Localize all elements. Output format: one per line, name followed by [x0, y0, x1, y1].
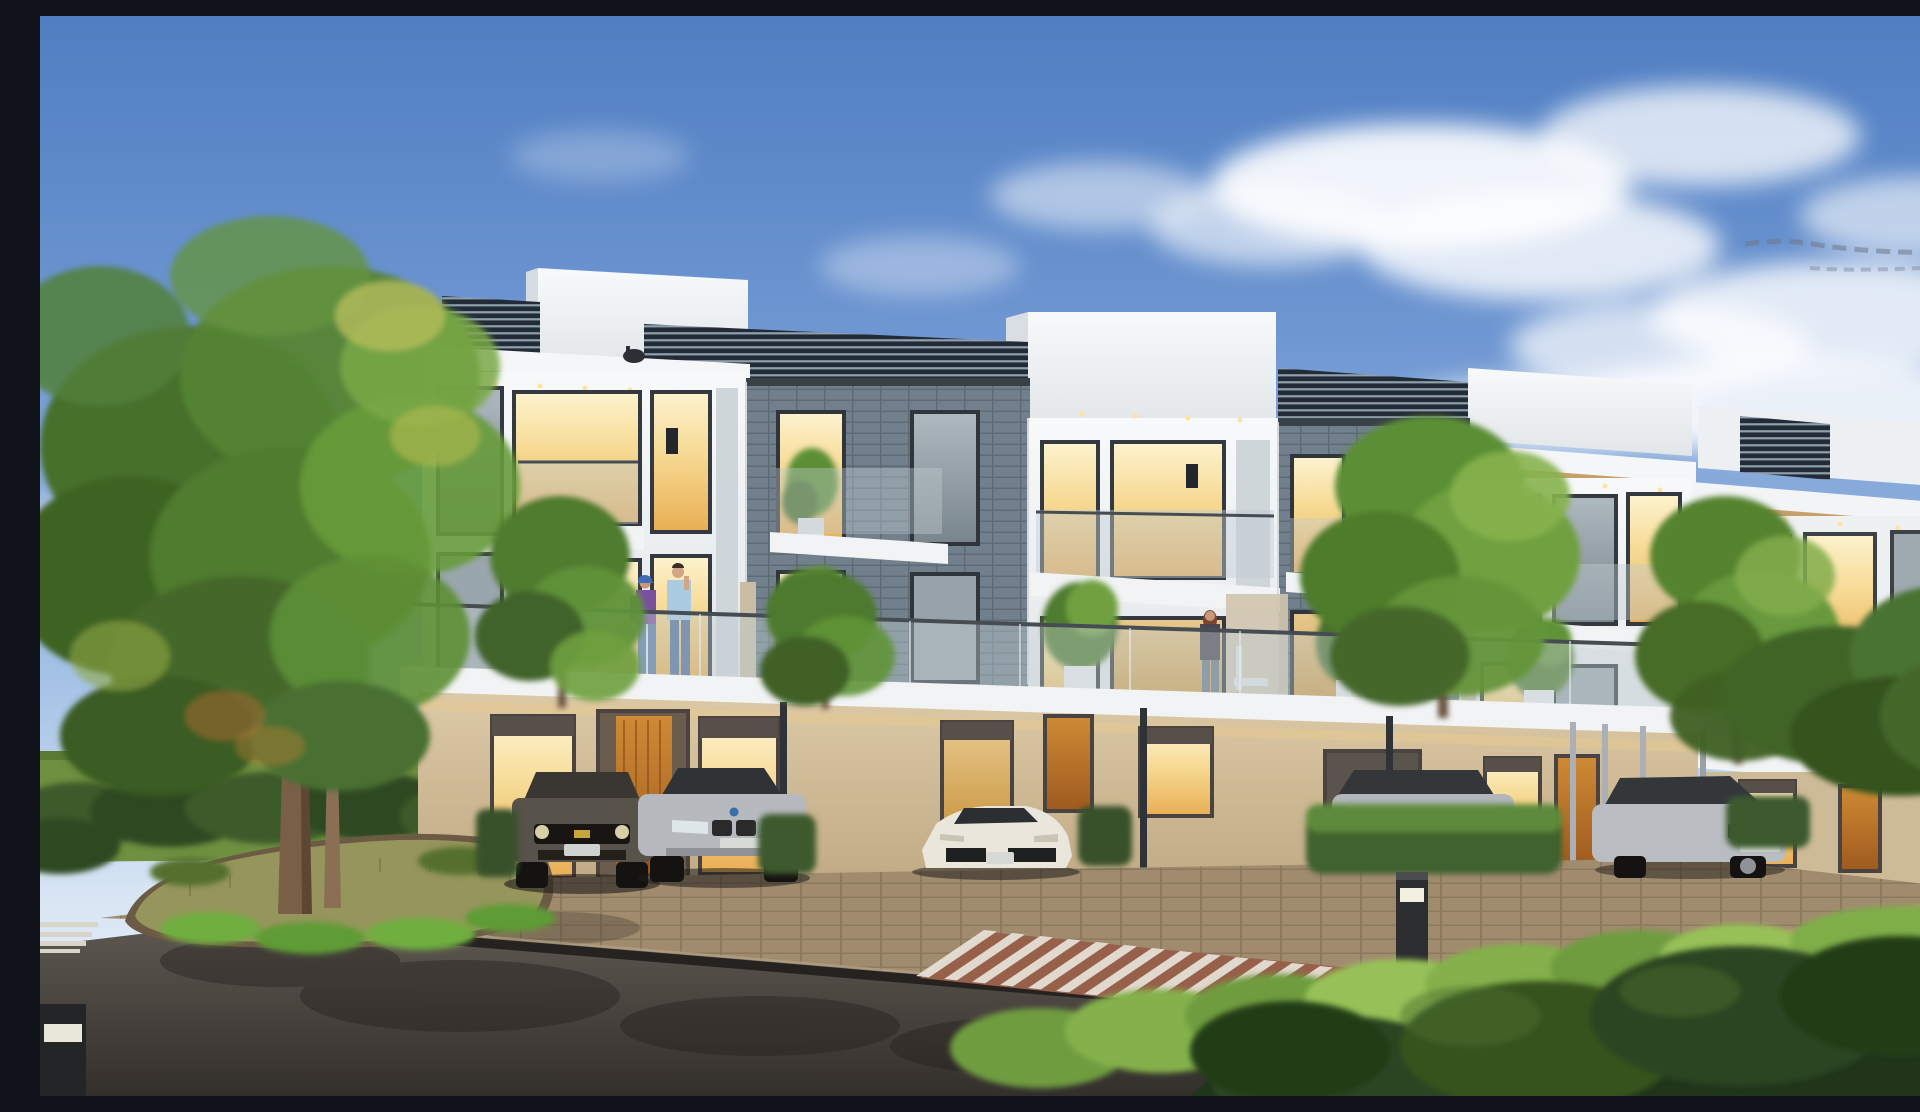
- bollard-glow-1: [1400, 888, 1424, 902]
- wall-sconce-2: [1186, 464, 1198, 488]
- license-plate-1: [564, 844, 600, 856]
- bollard-glow-2: [44, 1024, 82, 1042]
- brick1-balcony-glass: [776, 468, 942, 534]
- brick-coping-1: [746, 378, 1030, 386]
- wall-sconce-1: [666, 428, 678, 454]
- bowtie-badge: [574, 830, 590, 838]
- license-plate-3: [986, 852, 1014, 864]
- louvre-screen-4: [1740, 416, 1830, 480]
- render-canvas: [40, 16, 1920, 1096]
- unit2-balcony-glass: [1036, 510, 1274, 578]
- roundel-badge: [730, 808, 739, 817]
- architectural-render: Photorealistic rendering of a row of mod…: [40, 16, 1920, 1096]
- bollard-light-2: [40, 1004, 86, 1096]
- parapet-tower-centre: [1028, 312, 1276, 428]
